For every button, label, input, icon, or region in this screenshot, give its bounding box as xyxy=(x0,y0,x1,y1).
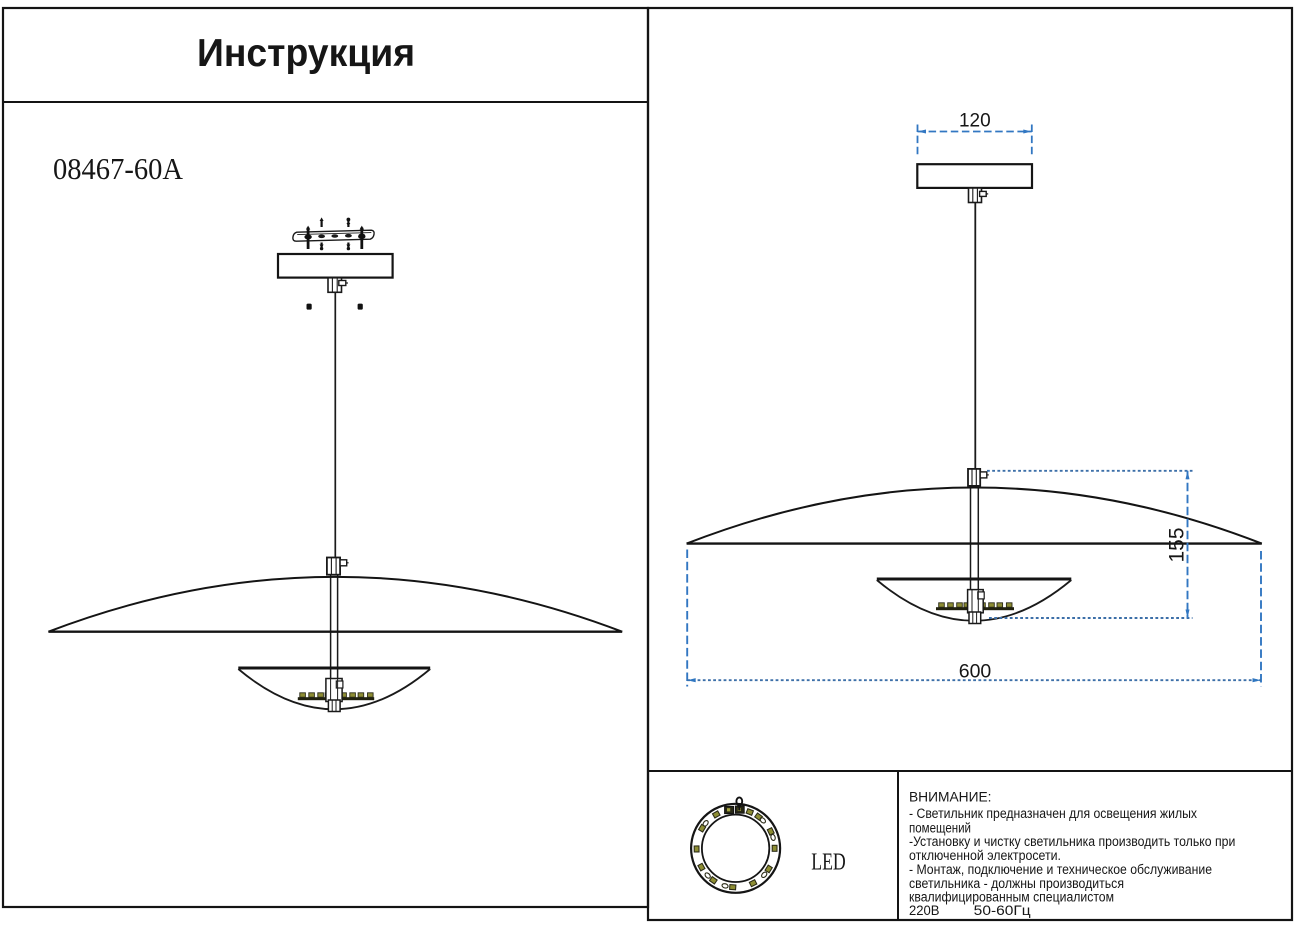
svg-text:Инструкция: Инструкция xyxy=(197,32,415,75)
svg-text:LED: LED xyxy=(811,849,846,876)
svg-text:120: 120 xyxy=(959,111,991,132)
svg-text:600: 600 xyxy=(959,661,992,683)
svg-text:ВНИМАНИЕ:: ВНИМАНИЕ: xyxy=(909,790,992,806)
svg-text:155: 155 xyxy=(1166,527,1189,562)
svg-text:08467-60A: 08467-60A xyxy=(53,151,184,186)
svg-text:50-60Гц: 50-60Гц xyxy=(974,903,1031,919)
svg-text:220В: 220В xyxy=(909,903,940,919)
